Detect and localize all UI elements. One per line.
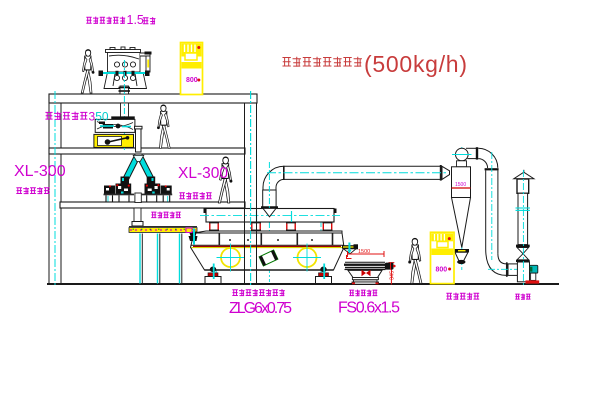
svg-text:800: 800 [186, 77, 198, 84]
svg-text:XL-300: XL-300 [14, 163, 66, 180]
svg-text:800: 800 [436, 267, 448, 274]
svg-text:(500kg/h): (500kg/h) [364, 51, 467, 77]
svg-text:FS0.6x1.5: FS0.6x1.5 [338, 300, 400, 317]
svg-text:XL-300: XL-300 [178, 165, 228, 182]
svg-text:350: 350 [89, 110, 109, 124]
svg-text:345: 345 [390, 271, 396, 280]
svg-text:ZLG6x0.75: ZLG6x0.75 [229, 300, 292, 317]
svg-text:1500: 1500 [358, 249, 370, 255]
svg-text:1.5: 1.5 [127, 13, 144, 27]
svg-text:1500: 1500 [455, 182, 466, 188]
